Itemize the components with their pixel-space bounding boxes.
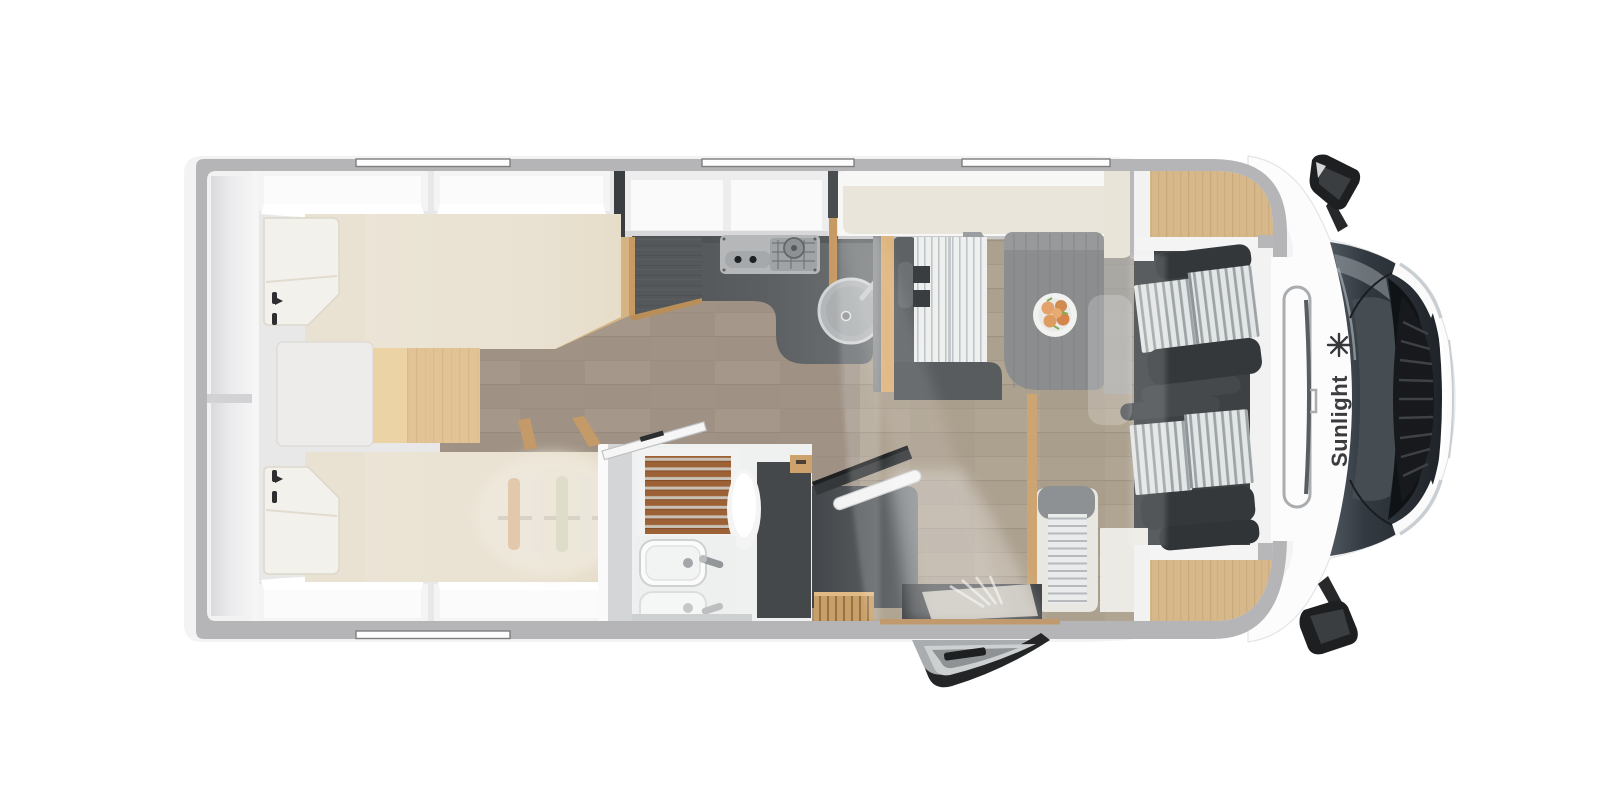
svg-text:Sunlight: Sunlight [1327, 375, 1352, 467]
